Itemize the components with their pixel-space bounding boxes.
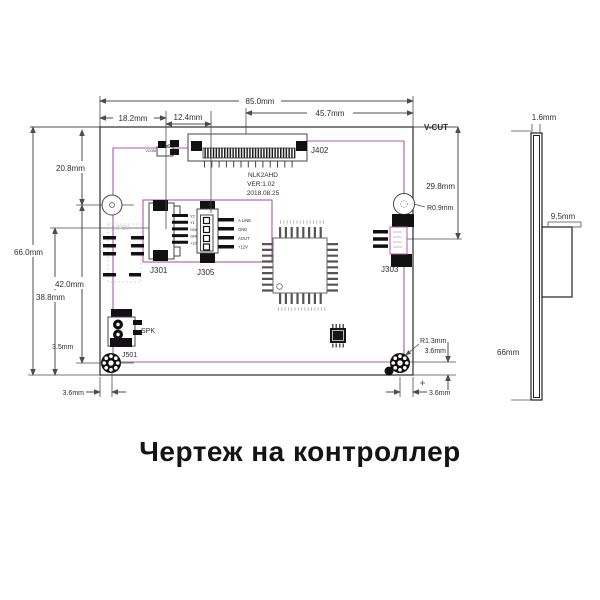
main-ic-qfp	[268, 222, 333, 309]
dimension-66mm: 66.0mm	[12, 127, 52, 375]
connector-j402: J402	[188, 134, 329, 164]
r13-label: R1.3mm	[420, 338, 447, 345]
dimension-3p5mm: 3.5mm	[52, 344, 74, 351]
dimension-42mm: 42.0mm	[53, 205, 92, 363]
board-silkscreen-text: NLK2AHD VER:1.02 2018.08.25	[247, 172, 280, 197]
hfd3-label: HFD3	[113, 225, 130, 232]
j303-label: J303	[381, 265, 399, 274]
j305-pin-4: +12V	[238, 245, 248, 250]
r09-label: R0.9mm	[427, 205, 454, 212]
dimension-45mm: 45.7mm	[246, 106, 413, 118]
j301-label: J301	[150, 266, 168, 275]
dim-35-label: 3.5mm	[52, 344, 74, 351]
controller-drawing-page: 85.0mm 18.2mm 12.4mm 45.7mm V-CUT 66.0mm…	[0, 0, 600, 600]
j402-label: J402	[311, 146, 329, 155]
board-text-model: NLK2AHD	[248, 172, 278, 179]
dim-38-label: 38.8mm	[36, 293, 65, 302]
j305-pin-2: GND	[238, 227, 247, 232]
connector-j305: A LINE GND AOUT +12V J305	[197, 201, 251, 277]
radius-r09-callout: R0.9mm	[410, 203, 454, 212]
dim-29-label: 29.8mm	[426, 182, 455, 191]
passive-components	[103, 236, 144, 277]
dim-20-label: 20.8mm	[56, 164, 85, 173]
mounting-hole-top-right	[394, 194, 415, 215]
spk-label: SPK	[141, 328, 155, 335]
j305-pin-1: A LINE	[238, 218, 251, 223]
board-text-version: VER:1.02	[247, 181, 275, 188]
dim-66-label: 66.0mm	[14, 248, 43, 257]
dimension-bottom-left-3p6: 3.6mm	[63, 390, 126, 397]
technical-drawing: 85.0mm 18.2mm 12.4mm 45.7mm V-CUT 66.0mm…	[0, 0, 600, 430]
j501-label: J501	[122, 352, 137, 359]
dimension-20mm: 20.8mm	[54, 130, 94, 205]
dim-45-label: 45.7mm	[316, 109, 345, 118]
v-cut-label: V-CUT	[424, 123, 448, 132]
dim-18-label: 18.2mm	[119, 114, 148, 123]
dimension-bottom-right-3p6-vertical: 3.6mm	[425, 342, 448, 390]
dimension-29mm: 29.8mm	[426, 127, 458, 239]
connector-j303: J303	[381, 214, 415, 274]
dim-42-label: 42.0mm	[55, 280, 84, 289]
dim-bl36-label: 3.6mm	[63, 390, 85, 397]
dim-85-label: 85.0mm	[246, 97, 275, 106]
connector-j301: Y2 Y1 GND GND +12V J301	[149, 200, 200, 275]
connector-j501: SPK J501	[108, 309, 155, 359]
dim-br36h-label: 3.6mm	[429, 390, 451, 397]
dim-12-label: 12.4mm	[174, 113, 203, 122]
dimension-18mm: 18.2mm	[100, 111, 166, 123]
side-height-label: 66mm	[497, 348, 520, 357]
board-text-date: 2018.08.25	[247, 190, 280, 197]
side-component-width-label: 9.5mm	[551, 212, 576, 221]
vcom-label: VCOM	[146, 149, 157, 153]
page-title: Чертеж на контроллер	[0, 436, 600, 468]
small-ic	[330, 326, 346, 346]
dimension-12mm: 12.4mm	[166, 113, 211, 124]
j305-label: J305	[197, 268, 215, 277]
side-thickness-label: 1.6mm	[532, 113, 557, 122]
side-view: 1.6mm 9.5mm 66mm	[497, 113, 581, 400]
dimension-85mm: 85.0mm	[100, 94, 413, 106]
mounting-pad-bottom-right	[385, 353, 411, 376]
j301-pin-2: Y1	[190, 220, 196, 225]
j301-pin-1: Y2	[190, 214, 196, 219]
via-dot	[385, 367, 394, 376]
dimension-bottom-right-3p6-horizontal: 3.6mm	[386, 381, 451, 398]
dim-br36v-label: 3.6mm	[425, 348, 447, 355]
board-outline	[100, 127, 413, 375]
j305-pin-labels: A LINE GND AOUT +12V	[238, 218, 251, 250]
mounting-hole-top-left	[102, 195, 122, 215]
j305-pin-3: AOUT	[238, 236, 250, 241]
mounting-pad-bottom-left	[101, 353, 121, 373]
